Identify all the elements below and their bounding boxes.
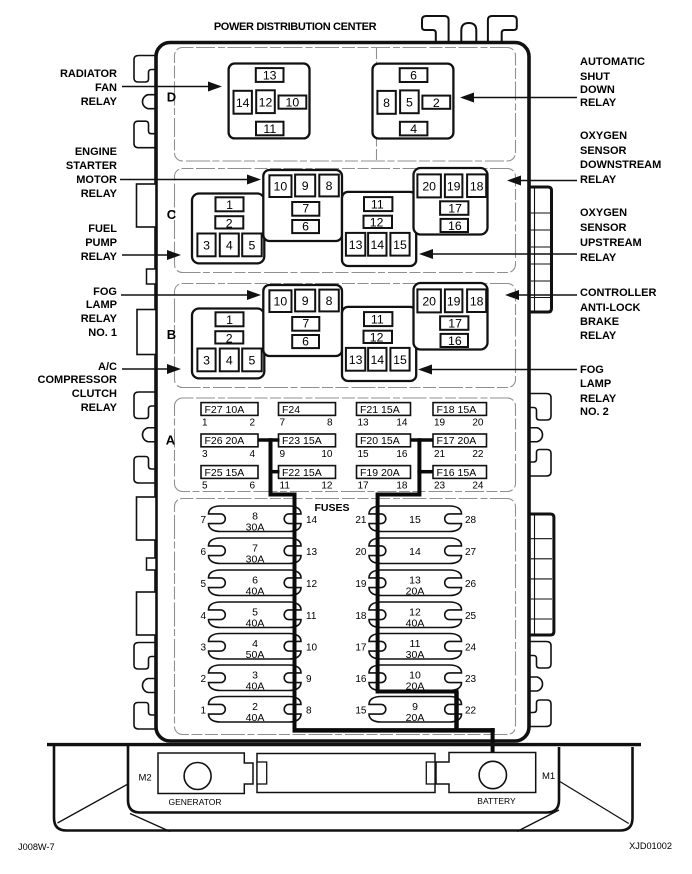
svg-text:6: 6 bbox=[200, 547, 206, 558]
svg-text:XJD01002: XJD01002 bbox=[629, 841, 672, 851]
svg-text:OXYGEN: OXYGEN bbox=[580, 130, 627, 142]
svg-text:12: 12 bbox=[321, 481, 333, 492]
svg-text:F24: F24 bbox=[282, 404, 300, 416]
svg-text:A/C: A/C bbox=[98, 361, 117, 373]
svg-text:OXYGEN: OXYGEN bbox=[580, 207, 627, 219]
svg-text:F25 15A: F25 15A bbox=[205, 467, 245, 479]
svg-text:16: 16 bbox=[396, 449, 408, 460]
svg-text:7: 7 bbox=[200, 515, 206, 526]
svg-text:6: 6 bbox=[249, 481, 255, 492]
svg-text:9: 9 bbox=[306, 674, 312, 685]
svg-text:23: 23 bbox=[465, 674, 477, 685]
svg-text:30A: 30A bbox=[246, 521, 265, 533]
svg-text:F17 20A: F17 20A bbox=[437, 435, 477, 447]
svg-text:RADIATOR: RADIATOR bbox=[60, 68, 117, 80]
svg-text:CONTROLLER: CONTROLLER bbox=[580, 287, 656, 299]
svg-text:20: 20 bbox=[355, 547, 367, 558]
svg-text:4: 4 bbox=[249, 449, 255, 460]
svg-text:PUMP: PUMP bbox=[85, 237, 117, 249]
svg-text:13: 13 bbox=[306, 547, 318, 558]
svg-text:C: C bbox=[167, 207, 177, 222]
svg-text:15: 15 bbox=[358, 449, 370, 460]
svg-text:11: 11 bbox=[263, 122, 276, 136]
svg-text:19: 19 bbox=[434, 418, 446, 429]
svg-text:20A: 20A bbox=[406, 712, 425, 724]
svg-text:RELAY: RELAY bbox=[580, 97, 617, 109]
svg-text:26: 26 bbox=[465, 579, 477, 590]
svg-text:6: 6 bbox=[410, 69, 417, 83]
svg-text:F21 15A: F21 15A bbox=[360, 404, 400, 416]
svg-text:14: 14 bbox=[306, 515, 318, 526]
svg-text:10: 10 bbox=[306, 642, 318, 653]
svg-text:16: 16 bbox=[355, 674, 367, 685]
svg-text:11: 11 bbox=[306, 611, 317, 622]
svg-text:F22 15A: F22 15A bbox=[282, 467, 322, 479]
svg-text:17: 17 bbox=[358, 481, 370, 492]
svg-text:23: 23 bbox=[434, 481, 446, 492]
svg-text:M1: M1 bbox=[542, 771, 555, 782]
svg-text:F16 15A: F16 15A bbox=[437, 467, 477, 479]
svg-text:18: 18 bbox=[396, 481, 408, 492]
svg-text:F27 10A: F27 10A bbox=[205, 404, 245, 416]
svg-text:NO. 2: NO. 2 bbox=[580, 406, 609, 418]
svg-text:D: D bbox=[167, 90, 176, 105]
svg-text:14: 14 bbox=[409, 546, 421, 558]
svg-text:24: 24 bbox=[465, 642, 477, 653]
svg-text:14: 14 bbox=[236, 96, 250, 110]
svg-text:DOWN: DOWN bbox=[580, 84, 615, 96]
svg-text:10: 10 bbox=[321, 449, 333, 460]
svg-text:RELAY: RELAY bbox=[580, 393, 617, 405]
svg-text:40A: 40A bbox=[406, 617, 425, 629]
svg-text:8: 8 bbox=[306, 705, 312, 716]
svg-text:5: 5 bbox=[406, 95, 413, 109]
svg-text:5: 5 bbox=[200, 579, 206, 590]
svg-text:10: 10 bbox=[286, 96, 300, 110]
svg-text:25: 25 bbox=[465, 611, 477, 622]
svg-text:ENGINE: ENGINE bbox=[75, 146, 117, 158]
svg-text:21: 21 bbox=[355, 515, 367, 526]
svg-text:NO. 1: NO. 1 bbox=[88, 327, 117, 339]
svg-text:LAMP: LAMP bbox=[580, 378, 611, 390]
svg-text:F23 15A: F23 15A bbox=[282, 435, 322, 447]
svg-text:GENERATOR: GENERATOR bbox=[168, 797, 221, 807]
svg-text:RELAY: RELAY bbox=[81, 96, 118, 108]
svg-text:CLUTCH: CLUTCH bbox=[72, 388, 117, 400]
svg-text:FAN: FAN bbox=[95, 82, 117, 94]
svg-text:F26 20A: F26 20A bbox=[205, 435, 245, 447]
svg-text:13: 13 bbox=[358, 418, 370, 429]
svg-text:40A: 40A bbox=[246, 680, 265, 692]
svg-text:30A: 30A bbox=[246, 553, 265, 565]
svg-text:ANTI-LOCK: ANTI-LOCK bbox=[580, 302, 641, 314]
svg-text:27: 27 bbox=[465, 547, 477, 558]
svg-text:3: 3 bbox=[200, 642, 206, 653]
svg-text:22: 22 bbox=[472, 449, 484, 460]
svg-text:AUTOMATIC: AUTOMATIC bbox=[580, 56, 645, 68]
svg-text:4: 4 bbox=[410, 122, 417, 136]
svg-text:RELAY: RELAY bbox=[81, 251, 118, 263]
svg-text:13: 13 bbox=[263, 69, 277, 83]
svg-text:40A: 40A bbox=[246, 617, 265, 629]
svg-text:UPSTREAM: UPSTREAM bbox=[580, 237, 642, 249]
svg-text:12: 12 bbox=[259, 95, 273, 109]
svg-text:8: 8 bbox=[383, 96, 390, 110]
svg-text:BATTERY: BATTERY bbox=[477, 796, 516, 806]
svg-text:40A: 40A bbox=[246, 585, 265, 597]
svg-text:J008W-7: J008W-7 bbox=[18, 842, 55, 852]
svg-text:3: 3 bbox=[202, 449, 208, 460]
svg-text:18: 18 bbox=[355, 611, 367, 622]
svg-text:FOG: FOG bbox=[580, 364, 604, 376]
svg-text:15: 15 bbox=[409, 514, 421, 526]
svg-text:1: 1 bbox=[202, 418, 208, 429]
svg-text:MOTOR: MOTOR bbox=[76, 174, 117, 186]
svg-text:7: 7 bbox=[280, 418, 286, 429]
svg-text:21: 21 bbox=[434, 449, 446, 460]
svg-text:F20 15A: F20 15A bbox=[360, 435, 400, 447]
svg-text:5: 5 bbox=[202, 481, 208, 492]
svg-text:12: 12 bbox=[306, 579, 318, 590]
svg-text:50A: 50A bbox=[246, 649, 265, 661]
svg-text:F19 20A: F19 20A bbox=[360, 467, 400, 479]
svg-text:28: 28 bbox=[465, 515, 477, 526]
svg-text:30A: 30A bbox=[406, 649, 425, 661]
svg-text:20: 20 bbox=[472, 418, 484, 429]
svg-text:RELAY: RELAY bbox=[81, 313, 118, 325]
svg-text:A: A bbox=[166, 433, 176, 448]
svg-text:2: 2 bbox=[200, 674, 206, 685]
svg-text:SENSOR: SENSOR bbox=[580, 145, 627, 157]
svg-text:20A: 20A bbox=[406, 585, 425, 597]
svg-text:SHUT: SHUT bbox=[580, 71, 610, 83]
svg-text:14: 14 bbox=[396, 418, 408, 429]
svg-text:24: 24 bbox=[472, 481, 484, 492]
svg-text:4: 4 bbox=[200, 611, 206, 622]
svg-text:9: 9 bbox=[280, 449, 286, 460]
svg-text:8: 8 bbox=[327, 418, 333, 429]
svg-text:RELAY: RELAY bbox=[580, 252, 617, 264]
svg-text:FUEL: FUEL bbox=[88, 223, 117, 235]
svg-text:F18 15A: F18 15A bbox=[437, 404, 477, 416]
svg-text:LAMP: LAMP bbox=[86, 299, 117, 311]
svg-text:2: 2 bbox=[249, 418, 255, 429]
svg-text:DOWNSTREAM: DOWNSTREAM bbox=[580, 159, 661, 171]
svg-text:2: 2 bbox=[433, 96, 440, 110]
svg-text:RELAY: RELAY bbox=[580, 174, 617, 186]
svg-text:RELAY: RELAY bbox=[81, 188, 118, 200]
svg-text:11: 11 bbox=[280, 481, 291, 492]
svg-text:POWER DISTRIBUTION CENTER: POWER DISTRIBUTION CENTER bbox=[214, 21, 377, 33]
svg-text:19: 19 bbox=[355, 579, 367, 590]
svg-text:COMPRESSOR: COMPRESSOR bbox=[38, 374, 118, 386]
svg-text:BRAKE: BRAKE bbox=[580, 316, 619, 328]
svg-text:15: 15 bbox=[355, 705, 367, 716]
svg-text:40A: 40A bbox=[246, 712, 265, 724]
svg-text:FUSES: FUSES bbox=[314, 502, 349, 514]
svg-text:RELAY: RELAY bbox=[580, 330, 617, 342]
svg-text:STARTER: STARTER bbox=[66, 160, 117, 172]
svg-text:22: 22 bbox=[465, 705, 477, 716]
svg-text:FOG: FOG bbox=[93, 286, 117, 298]
svg-text:B: B bbox=[167, 327, 176, 342]
svg-text:17: 17 bbox=[355, 642, 367, 653]
svg-text:SENSOR: SENSOR bbox=[580, 222, 627, 234]
svg-text:1: 1 bbox=[200, 705, 206, 716]
svg-text:RELAY: RELAY bbox=[81, 402, 118, 414]
svg-text:M2: M2 bbox=[139, 773, 152, 784]
